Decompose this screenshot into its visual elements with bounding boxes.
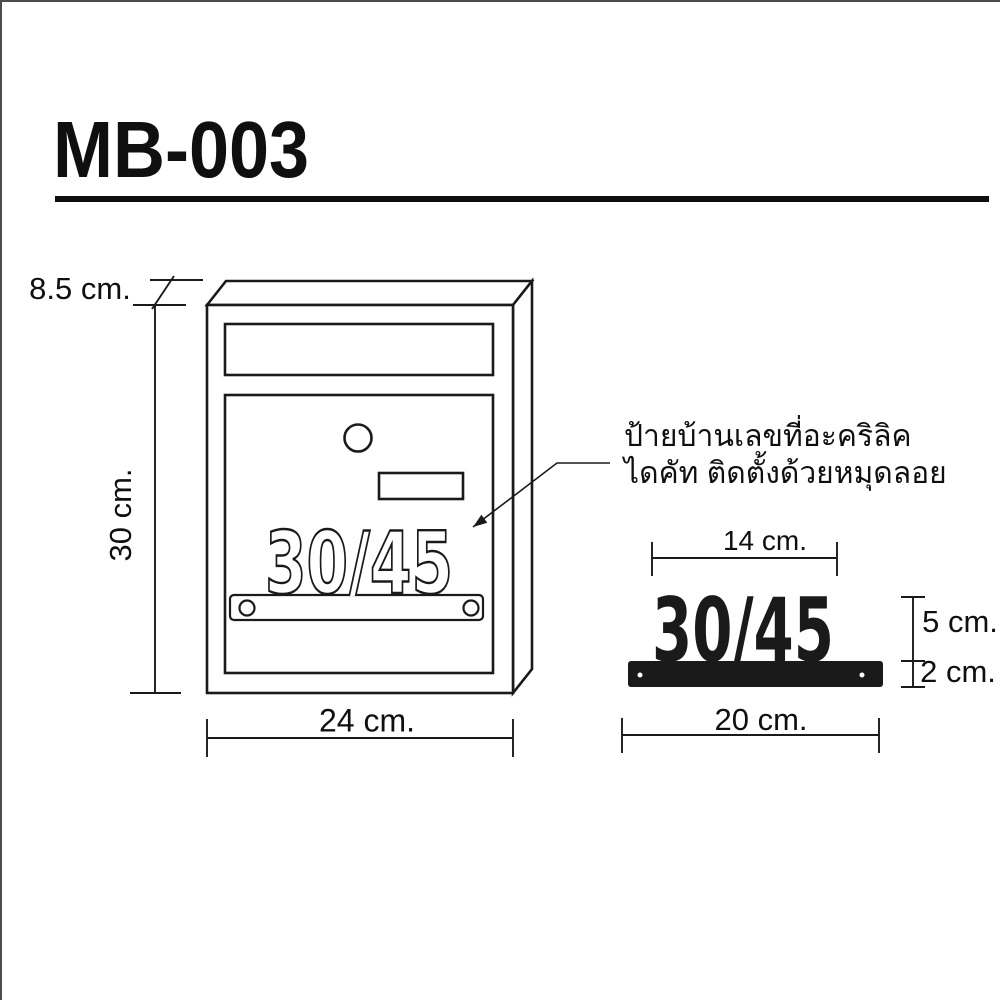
plate-hole-left (240, 601, 255, 616)
callout-line-2: ไดคัท ติดตั้งด้วยหมุดลอย (624, 455, 947, 492)
callout-line-1: ป้ายบ้านเลขที่อะคริลิค (624, 418, 947, 455)
bar-height-dim-label: 2 cm. (920, 654, 996, 690)
detail-bar-hole-right (860, 673, 865, 678)
technical-diagram: 30/45 30/45 (0, 0, 1000, 1000)
depth-dim-label: 8.5 cm. (29, 271, 131, 307)
detail-mounting-bar (628, 661, 883, 687)
detail-bar-hole-left (638, 673, 643, 678)
plate-hole-right (464, 601, 479, 616)
product-spec-sheet: MB-003 30/45 (0, 0, 1000, 1000)
callout-annotation: ป้ายบ้านเลขที่อะคริลิค ไดคัท ติดตั้งด้วย… (624, 418, 947, 492)
width-dim-label: 24 cm. (319, 703, 415, 740)
mailbox-front-face (207, 305, 513, 693)
mailbox-drawing (207, 281, 532, 693)
bar-width-dim-label: 20 cm. (714, 702, 807, 738)
number-height-dim-label: 5 cm. (922, 604, 998, 640)
mailbox-top-face (207, 281, 532, 305)
number-plate-bar-outline (230, 595, 483, 620)
number-width-dim-label: 14 cm. (723, 525, 807, 557)
height-dim-label: 30 cm. (103, 468, 139, 561)
mailbox-side-face (513, 281, 532, 693)
